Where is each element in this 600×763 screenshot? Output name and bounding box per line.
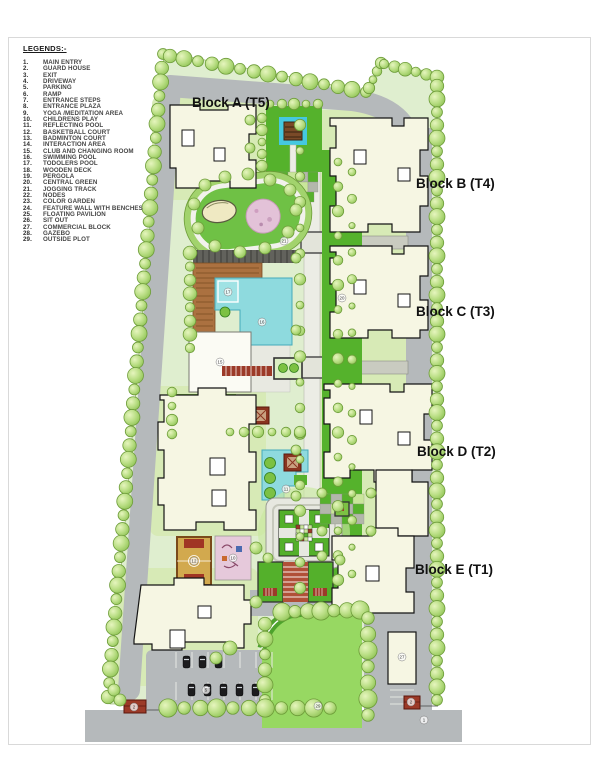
tree-icon (252, 426, 263, 437)
tree-icon (432, 695, 443, 706)
tree-icon (134, 313, 147, 326)
tree-icon (429, 130, 445, 146)
tree-icon (118, 510, 129, 521)
tree-icon (432, 381, 443, 392)
tree-icon (328, 604, 340, 616)
tree-icon (294, 505, 305, 516)
tree-icon (294, 119, 305, 130)
tree-icon (126, 397, 139, 410)
tree-icon (429, 483, 445, 499)
tree-icon (366, 526, 376, 536)
tree-icon (290, 204, 302, 216)
tree-icon (282, 226, 294, 238)
tree-icon (295, 480, 305, 490)
tree-icon (130, 355, 143, 368)
tree-icon (348, 409, 356, 417)
tree-icon (332, 501, 343, 512)
tree-icon (167, 387, 177, 397)
car-icon (220, 684, 227, 696)
tree-icon (347, 275, 356, 284)
tree-icon (335, 555, 345, 565)
tree-icon (209, 240, 221, 252)
tree-icon (128, 368, 144, 384)
legend-item-label: OUTSIDE PLOT (43, 237, 90, 243)
tree-icon (360, 675, 375, 690)
tree-icon (116, 523, 129, 536)
legend-list: 1.MAIN ENTRY2.GUARD HOUSE3.EXIT4.DRIVEWA… (23, 60, 173, 244)
tree-icon (362, 660, 374, 672)
map-marker-number: 29 (316, 704, 321, 709)
tree-icon (167, 429, 177, 439)
legend-item: 29.OUTSIDE PLOT (23, 237, 173, 243)
tree-icon (348, 168, 356, 176)
tree-icon (432, 146, 443, 157)
tree-icon (192, 222, 204, 234)
tree-icon (183, 246, 197, 260)
tree-icon (205, 57, 218, 70)
tree-icon (120, 451, 136, 467)
tree-icon (432, 224, 443, 235)
tree-icon (296, 378, 304, 386)
tree-icon (105, 648, 118, 661)
car-icon (183, 656, 190, 668)
tree-icon (411, 67, 420, 76)
legend-item-number: 29. (23, 237, 43, 243)
tree-icon (277, 71, 288, 82)
tree-icon (332, 353, 343, 364)
tree-icon (124, 409, 140, 425)
tree-icon (188, 198, 200, 210)
tree-icon (429, 287, 445, 303)
tree-icon (363, 82, 374, 93)
tree-icon (348, 249, 356, 257)
tree-icon (317, 526, 327, 536)
tree-icon (429, 640, 445, 656)
tree-icon (349, 303, 355, 309)
tree-icon (360, 626, 375, 641)
tree-icon (294, 582, 305, 593)
tree-icon (257, 677, 273, 693)
tree-icon (296, 147, 304, 155)
tree-icon (131, 326, 147, 342)
tree-icon (235, 63, 246, 74)
tree-icon (258, 138, 266, 146)
tree-icon (242, 168, 254, 180)
tree-icon (324, 702, 336, 714)
building-southwest (134, 578, 251, 650)
tree-icon (359, 641, 377, 659)
tree-icon (136, 300, 147, 311)
tree-icon (113, 535, 129, 551)
legend-title: LEGENDS:- (23, 44, 173, 53)
tree-icon (260, 649, 271, 660)
tree-icon (281, 427, 291, 437)
tree-icon (347, 516, 356, 525)
tree-icon (359, 690, 377, 708)
tree-icon (432, 420, 443, 431)
tree-icon (193, 56, 204, 67)
tree-icon (302, 74, 318, 90)
building-block-c (330, 246, 428, 338)
tree-icon (239, 427, 249, 437)
tree-icon (291, 253, 301, 263)
tree-icon (334, 453, 342, 461)
tree-icon (257, 149, 267, 159)
tree-icon (114, 694, 126, 706)
tree-icon (294, 351, 305, 362)
tree-icon (429, 679, 445, 695)
tree-icon (263, 553, 273, 563)
tree-icon (245, 143, 255, 153)
tree-icon (112, 564, 125, 577)
tree-icon (111, 594, 122, 605)
tree-icon (122, 468, 133, 479)
tree-icon (348, 329, 356, 337)
tree-icon (275, 702, 287, 714)
tree-icon (284, 184, 296, 196)
tree-icon (247, 65, 260, 78)
tree-icon (296, 301, 304, 309)
tree-icon (429, 365, 445, 381)
tree-icon (347, 435, 356, 444)
tree-icon (290, 700, 305, 715)
tree-icon (333, 256, 343, 266)
tree-icon (349, 544, 355, 550)
tree-icon (184, 274, 196, 286)
block-label: Block C (T3) (416, 304, 495, 319)
tree-icon (264, 174, 276, 186)
map-marker-number: 16 (260, 320, 265, 325)
tree-icon (219, 171, 231, 183)
tree-icon (140, 258, 151, 269)
bench (313, 588, 327, 596)
tree-icon (193, 700, 208, 715)
tree-icon (317, 488, 327, 498)
tree-icon (123, 439, 136, 452)
tree-icon (334, 158, 342, 166)
site-plan-page: 211617152011121027295221 Block A (T5)Blo… (0, 0, 600, 763)
block-label: Block B (T4) (416, 176, 495, 191)
tree-icon (344, 81, 360, 97)
tree-icon (223, 641, 237, 655)
tree-icon (108, 606, 121, 619)
tree-icon (250, 542, 262, 554)
tree-icon (349, 464, 355, 470)
tree-icon (432, 616, 443, 627)
tree-icon (333, 477, 343, 487)
tree-icon (398, 62, 412, 76)
tree-icon (259, 242, 271, 254)
feature-wall-benches (222, 366, 272, 376)
tree-icon (256, 160, 267, 171)
tree-icon (294, 274, 305, 285)
tree-icon (332, 574, 343, 585)
tree-icon (432, 655, 443, 666)
car-icon (188, 684, 195, 696)
tree-icon (429, 405, 445, 421)
tree-icon (129, 384, 140, 395)
tree-icon (295, 172, 305, 182)
tree-icon (102, 661, 118, 677)
car-icon (236, 684, 243, 696)
map-marker-number: 11 (284, 487, 289, 492)
tree-icon (366, 488, 376, 498)
tree-icon (138, 242, 154, 258)
tree-icon (289, 605, 301, 617)
tree-icon (291, 325, 301, 335)
tree-icon (234, 246, 246, 258)
tree-icon (260, 66, 276, 82)
tree-icon (349, 222, 355, 228)
tree-icon (332, 427, 343, 438)
tree-icon (256, 124, 267, 135)
tree-icon (184, 315, 196, 327)
map-marker-number: 27 (400, 655, 405, 660)
bench (263, 588, 277, 596)
map-marker-number: 12 (192, 559, 197, 564)
tree-icon (302, 100, 310, 108)
tree-icon (429, 326, 445, 342)
tree-icon (117, 493, 133, 509)
tree-icon (183, 328, 197, 342)
tree-icon (256, 699, 274, 717)
map-marker-number: 21 (282, 239, 287, 244)
tree-icon (135, 284, 151, 300)
tree-icon (432, 499, 443, 510)
tree-icon (268, 428, 276, 436)
tree-icon (319, 79, 330, 90)
tree-icon (429, 209, 445, 225)
tree-icon (257, 113, 267, 123)
tree-icon (107, 636, 118, 647)
tree-icon (348, 570, 356, 578)
tree-icon (332, 205, 343, 216)
tree-icon (258, 663, 271, 676)
tree-icon (296, 533, 304, 541)
tree-icon (347, 194, 356, 203)
tree-icon (432, 342, 443, 353)
tree-icon (114, 552, 125, 563)
tree-icon (429, 91, 445, 107)
tree-icon (333, 403, 343, 413)
tree-icon (125, 426, 136, 437)
tree-icon (349, 383, 355, 389)
tree-icon (185, 343, 194, 352)
tree-icon (291, 445, 301, 455)
tree-icon (185, 303, 194, 312)
tree-icon (289, 72, 302, 85)
block-label: Block D (T2) (417, 444, 496, 459)
map-marker-number: 10 (231, 556, 236, 561)
tree-icon (369, 76, 377, 84)
tree-icon (207, 699, 225, 717)
tree-icon (432, 107, 443, 118)
tree-icon (241, 700, 256, 715)
tree-icon (226, 428, 234, 436)
block-label: Block E (T1) (415, 562, 493, 577)
tree-icon (295, 557, 305, 567)
tree-icon (132, 342, 143, 353)
tree-icon (429, 522, 445, 538)
tree-icon (334, 379, 342, 387)
tree-icon (218, 58, 234, 74)
tree-icon (296, 455, 304, 463)
tree-icon (379, 59, 388, 68)
tree-icon (432, 263, 443, 274)
tree-icon (137, 271, 150, 284)
tree-icon (347, 355, 356, 364)
tree-icon (296, 224, 304, 232)
tree-icon (429, 248, 445, 264)
tree-icon (178, 702, 190, 714)
tree-icon (168, 402, 176, 410)
tree-icon (334, 306, 342, 314)
tree-icon (333, 329, 343, 339)
tree-icon (432, 459, 443, 470)
tree-icon (210, 652, 222, 664)
tree-icon (159, 699, 177, 717)
tree-icon (227, 702, 239, 714)
tree-icon (334, 232, 342, 240)
tree-icon (313, 99, 323, 109)
tree-icon (295, 403, 305, 413)
building-block-b (330, 118, 428, 232)
tree-icon (277, 99, 287, 109)
tree-icon (334, 527, 342, 535)
legend-panel: LEGENDS:- 1.MAIN ENTRY2.GUARD HOUSE3.EXI… (23, 44, 173, 244)
tree-icon (432, 577, 443, 588)
entrance-steps (258, 562, 333, 602)
tree-icon (429, 601, 445, 617)
car-icon (199, 656, 206, 668)
tree-icon (362, 612, 374, 624)
tree-icon (250, 596, 262, 608)
block-label: Block A (T5) (192, 95, 270, 110)
tree-icon (257, 631, 273, 647)
tree-icon (245, 115, 255, 125)
tree-icon (176, 51, 192, 67)
tree-icon (199, 179, 211, 191)
tree-icon (185, 262, 194, 271)
tree-icon (291, 491, 301, 501)
tree-icon (331, 80, 344, 93)
tree-icon (332, 279, 343, 290)
tree-icon (110, 577, 126, 593)
tree-icon (317, 551, 327, 561)
tree-icon (432, 538, 443, 549)
map-marker-number: 17 (226, 290, 231, 295)
tree-icon (333, 182, 343, 192)
tree-icon (106, 619, 122, 635)
tree-icon (288, 98, 299, 109)
tree-icon (183, 287, 197, 301)
tree-icon (166, 414, 177, 425)
tree-icon (258, 617, 271, 630)
tree-icon (348, 490, 356, 498)
tree-icon (294, 426, 305, 437)
map-marker-number: 15 (218, 360, 223, 365)
tree-icon (119, 481, 132, 494)
tree-icon (362, 709, 374, 721)
map-marker-number: 20 (340, 296, 345, 301)
